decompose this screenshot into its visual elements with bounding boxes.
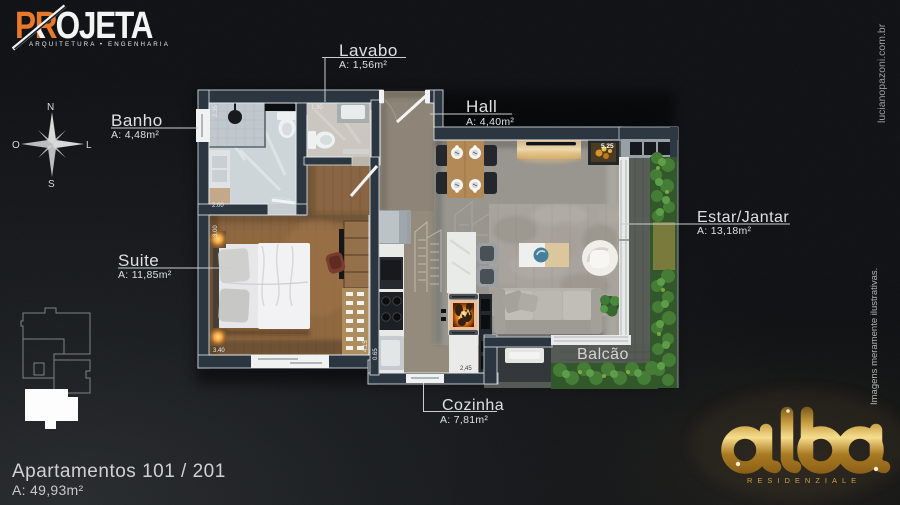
svg-text:Imagens meramente ilustrativas: Imagens meramente ilustrativas. bbox=[869, 268, 880, 405]
svg-text:L: L bbox=[86, 140, 92, 151]
svg-text:2.00: 2.00 bbox=[212, 203, 224, 209]
svg-text:A: 7,81m²: A: 7,81m² bbox=[440, 414, 488, 426]
svg-text:0.65: 0.65 bbox=[373, 348, 379, 360]
svg-text:Suite: Suite bbox=[118, 251, 159, 270]
svg-text:Banho: Banho bbox=[111, 111, 163, 130]
svg-text:A: 49,93m²: A: 49,93m² bbox=[12, 482, 84, 498]
svg-text:2,45: 2,45 bbox=[460, 366, 472, 372]
svg-text:RESIDENZIALE: RESIDENZIALE bbox=[747, 476, 861, 485]
svg-text:Balcão: Balcão bbox=[577, 346, 629, 363]
svg-text:Hall: Hall bbox=[466, 97, 497, 116]
svg-text:3.40: 3.40 bbox=[213, 348, 225, 354]
svg-text:A: 4,48m²: A: 4,48m² bbox=[111, 129, 159, 141]
svg-text:A: 13,18m²: A: 13,18m² bbox=[697, 225, 752, 237]
svg-text:5.25: 5.25 bbox=[601, 143, 614, 150]
svg-text:Apartamentos 101 / 201: Apartamentos 101 / 201 bbox=[12, 461, 226, 482]
svg-text:A: 4,40m²: A: 4,40m² bbox=[466, 116, 514, 128]
svg-text:N: N bbox=[47, 102, 54, 113]
svg-text:O: O bbox=[12, 140, 20, 151]
svg-text:lucianopazoni.com.br: lucianopazoni.com.br bbox=[876, 23, 888, 123]
svg-text:Estar/Jantar: Estar/Jantar bbox=[697, 209, 789, 226]
svg-text:3.00: 3.00 bbox=[213, 225, 219, 237]
svg-text:4.15: 4.15 bbox=[363, 340, 369, 352]
svg-text:2.35: 2.35 bbox=[213, 105, 219, 117]
svg-text:S: S bbox=[48, 179, 55, 190]
svg-text:ARQUITETURA • ENGENHARIA: ARQUITETURA • ENGENHARIA bbox=[29, 41, 170, 48]
svg-text:1.30: 1.30 bbox=[311, 105, 323, 111]
svg-text:A: 11,85m²: A: 11,85m² bbox=[118, 269, 172, 281]
svg-text:A: 1,56m²: A: 1,56m² bbox=[339, 59, 387, 71]
